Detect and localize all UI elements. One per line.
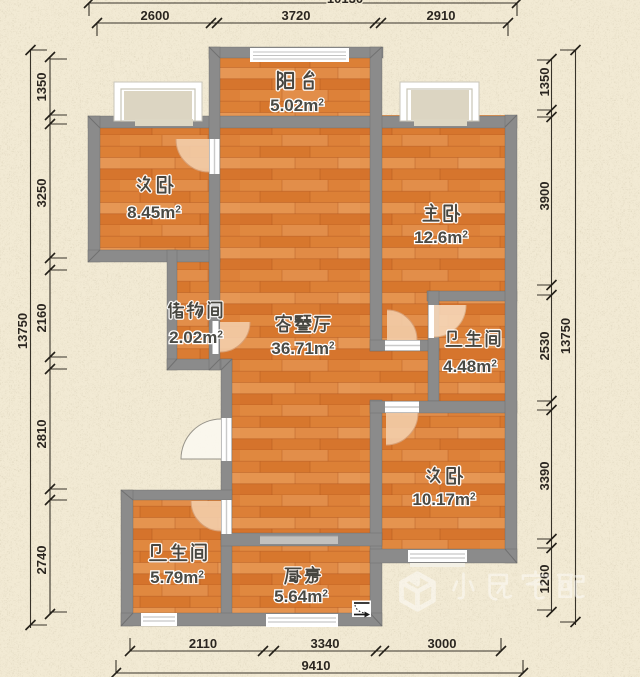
svg-text:3390: 3390 <box>537 462 552 491</box>
svg-text:13750: 13750 <box>15 313 30 349</box>
svg-text:5.79m2: 5.79m2 <box>150 568 204 587</box>
svg-text:2110: 2110 <box>189 636 217 651</box>
svg-text:2740: 2740 <box>34 546 49 575</box>
svg-text:36.71m2: 36.71m2 <box>271 339 335 358</box>
svg-text:12.6m2: 12.6m2 <box>414 228 468 247</box>
svg-text:4.48m2: 4.48m2 <box>443 357 497 376</box>
svg-text:2.02m2: 2.02m2 <box>169 328 223 347</box>
svg-text:3900: 3900 <box>537 182 552 211</box>
svg-text:9410: 9410 <box>302 658 331 673</box>
svg-text:8.45m2: 8.45m2 <box>127 203 181 222</box>
svg-text:2530: 2530 <box>537 332 552 361</box>
svg-text:3000: 3000 <box>428 636 457 651</box>
svg-text:13750: 13750 <box>558 318 573 354</box>
svg-text:1350: 1350 <box>34 73 49 102</box>
svg-text:3250: 3250 <box>34 179 49 208</box>
svg-text:5.64m2: 5.64m2 <box>274 587 328 606</box>
svg-text:2910: 2910 <box>427 8 456 23</box>
svg-text:5.02m2: 5.02m2 <box>270 96 324 115</box>
svg-text:10.17m2: 10.17m2 <box>412 490 476 509</box>
svg-text:3720: 3720 <box>282 8 311 23</box>
svg-text:2810: 2810 <box>34 420 49 449</box>
svg-text:2160: 2160 <box>34 304 49 333</box>
svg-text:3340: 3340 <box>311 636 340 651</box>
svg-text:1350: 1350 <box>537 68 552 97</box>
svg-text:10130: 10130 <box>327 0 363 6</box>
svg-text:2600: 2600 <box>141 8 170 23</box>
